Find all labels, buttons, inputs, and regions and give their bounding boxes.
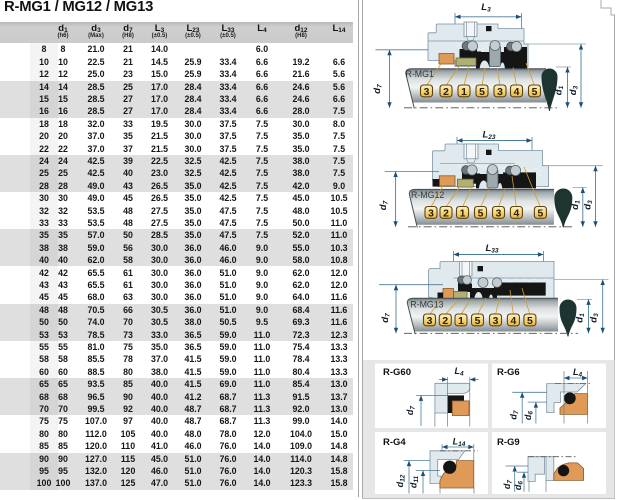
svg-text:4: 4 [511,316,517,327]
svg-text:3: 3 [424,87,430,98]
svg-text:3: 3 [497,87,503,98]
svg-text:d3: d3 [589,313,601,323]
svg-text:3: 3 [496,208,502,219]
svg-text:3: 3 [493,316,499,327]
svg-text:R-G9: R-G9 [497,437,520,448]
svg-text:d3: d3 [568,85,580,95]
svg-text:4: 4 [514,87,520,98]
svg-text:L23: L23 [482,130,495,142]
svg-text:L33: L33 [485,243,498,255]
svg-text:5: 5 [527,316,533,327]
svg-text:d7: d7 [378,200,390,210]
svg-text:d1: d1 [575,313,587,323]
svg-text:4: 4 [514,208,520,219]
svg-text:d7: d7 [372,84,384,94]
svg-text:5: 5 [479,87,485,98]
svg-text:d7: d7 [380,313,392,323]
svg-text:R-G4: R-G4 [383,437,406,448]
svg-text:R-MG13: R-MG13 [410,300,443,310]
svg-text:d3: d3 [583,200,595,210]
svg-text:R-G60: R-G60 [383,367,411,378]
svg-text:2: 2 [442,316,448,327]
svg-text:2: 2 [443,87,449,98]
svg-text:2: 2 [443,208,449,219]
svg-text:5: 5 [538,208,544,219]
svg-text:5: 5 [478,208,484,219]
svg-text:1: 1 [458,316,464,327]
svg-text:5: 5 [532,87,538,98]
svg-text:3: 3 [428,208,434,219]
svg-text:R-MG1: R-MG1 [406,69,434,79]
svg-text:5: 5 [475,316,481,327]
svg-text:L3: L3 [481,2,491,14]
svg-text:1: 1 [460,208,466,219]
svg-text:R-MG12: R-MG12 [411,190,444,200]
svg-text:R-G6: R-G6 [497,367,520,378]
svg-text:3: 3 [427,316,433,327]
svg-text:1: 1 [461,87,467,98]
